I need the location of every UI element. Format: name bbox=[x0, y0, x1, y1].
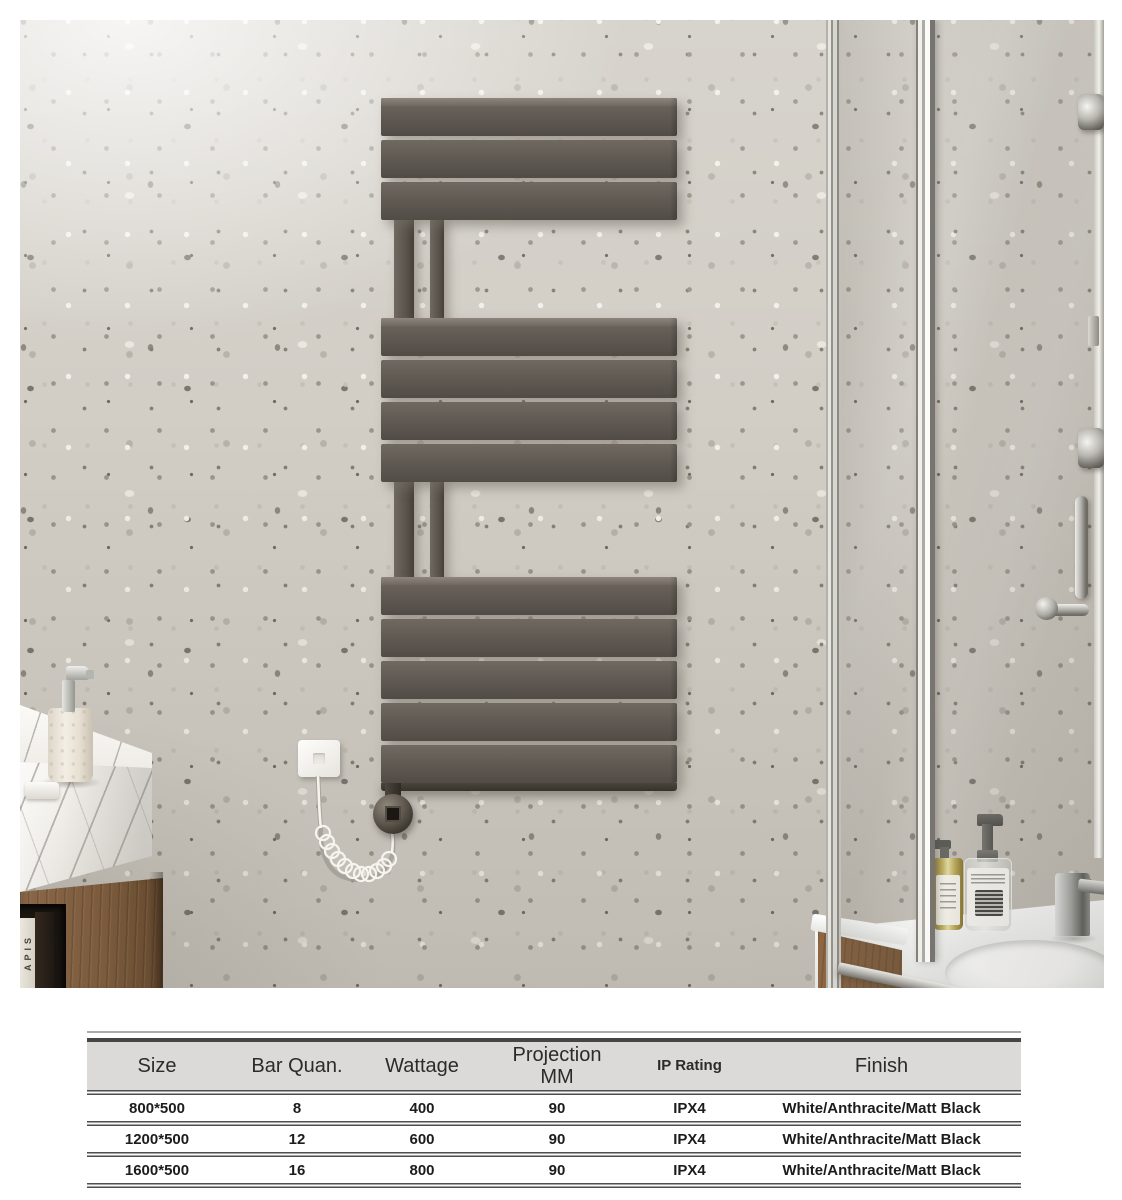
table-cell-bar-quantity: 12 bbox=[227, 1131, 367, 1148]
radiator-bar bbox=[381, 444, 677, 482]
table-cell-projection: 90 bbox=[477, 1100, 637, 1117]
soap-dispenser-pump-tip bbox=[86, 670, 94, 679]
table-cell-ip-rating: IPX4 bbox=[637, 1162, 742, 1179]
col-header-wattage: Wattage bbox=[367, 1055, 477, 1077]
radiator-tube bbox=[430, 475, 444, 585]
table-cell-projection: 90 bbox=[477, 1131, 637, 1148]
radiator-tube bbox=[394, 215, 414, 325]
table-row: 1600*500 16 800 90 IPX4 White/Anthracite… bbox=[87, 1157, 1021, 1183]
radiator-bottom-edge bbox=[381, 783, 677, 791]
glass-clamp-bottom bbox=[1078, 428, 1104, 468]
table-cell-size: 1200*500 bbox=[87, 1131, 227, 1148]
table-cell-wattage: 600 bbox=[367, 1131, 477, 1148]
table-cell-ip-rating: IPX4 bbox=[637, 1131, 742, 1148]
col-header-projection-mm: Projection MM bbox=[477, 1044, 637, 1089]
col-header-ip-rating: IP Rating bbox=[637, 1058, 742, 1075]
table-cell-bar-quantity: 8 bbox=[227, 1100, 367, 1117]
radiator-tube bbox=[394, 475, 414, 585]
amber-bottle-label bbox=[936, 875, 960, 925]
glass-clamp-top bbox=[1078, 94, 1104, 130]
radiator-section-bottom bbox=[381, 577, 677, 793]
radiator-bar bbox=[381, 360, 677, 398]
bathroom-product-photo: APIS bbox=[20, 20, 1104, 988]
soap-dispenser-body bbox=[48, 708, 93, 782]
table-bottom-border bbox=[87, 1183, 1021, 1188]
radiator-bar bbox=[381, 98, 677, 136]
shower-door-handle-vertical bbox=[1075, 496, 1088, 599]
radiator-section-top bbox=[381, 98, 677, 222]
radiator-bar bbox=[381, 402, 677, 440]
table-cell-finish: White/Anthracite/Matt Black bbox=[742, 1131, 1021, 1148]
radiator-bar bbox=[381, 703, 677, 741]
radiator-bar bbox=[381, 140, 677, 178]
table-cell-bar-quantity: 16 bbox=[227, 1162, 367, 1179]
table-header-row: Size Bar Quan. Wattage Projection MM IP … bbox=[87, 1042, 1021, 1090]
table-row: 1200*500 12 600 90 IPX4 White/Anthracite… bbox=[87, 1126, 1021, 1152]
vanity-side-shadow bbox=[149, 872, 163, 988]
col-header-size: Size bbox=[87, 1055, 227, 1077]
col-header-bar-quantity: Bar Quan. bbox=[227, 1055, 367, 1077]
heating-element bbox=[373, 794, 413, 834]
book-spine: APIS bbox=[20, 918, 35, 988]
radiator-bar bbox=[381, 745, 677, 783]
table-cell-wattage: 400 bbox=[367, 1100, 477, 1117]
clear-bottle-label bbox=[967, 868, 1009, 926]
spec-table: Size Bar Quan. Wattage Projection MM IP … bbox=[87, 1031, 1021, 1188]
radiator-bar bbox=[381, 577, 677, 615]
radiator-section-middle bbox=[381, 318, 677, 484]
table-cell-wattage: 800 bbox=[367, 1162, 477, 1179]
book-spine-text: APIS bbox=[23, 934, 33, 971]
shower-door-handle-knob bbox=[1035, 597, 1058, 620]
soap-dispenser-pump-stem bbox=[62, 680, 75, 712]
table-cell-finish: White/Anthracite/Matt Black bbox=[742, 1162, 1021, 1179]
radiator-bar bbox=[381, 318, 677, 356]
col-header-finish: Finish bbox=[742, 1055, 1021, 1077]
glass-frame-strip-middle bbox=[916, 20, 935, 962]
table-row: 800*500 8 400 90 IPX4 White/Anthracite/M… bbox=[87, 1095, 1021, 1121]
table-cell-size: 1600*500 bbox=[87, 1162, 227, 1179]
radiator-bar bbox=[381, 182, 677, 220]
shelf-dark-object bbox=[35, 912, 54, 988]
radiator-tube bbox=[430, 215, 444, 325]
radiator-bar bbox=[381, 619, 677, 657]
radiator-bar bbox=[381, 661, 677, 699]
towel-radiator bbox=[381, 20, 677, 810]
table-cell-size: 800*500 bbox=[87, 1100, 227, 1117]
glass-frame-strip-left bbox=[826, 20, 841, 988]
table-cell-finish: White/Anthracite/Matt Black bbox=[742, 1100, 1021, 1117]
glass-bracket bbox=[1088, 316, 1099, 346]
table-cell-projection: 90 bbox=[477, 1162, 637, 1179]
table-cell-ip-rating: IPX4 bbox=[637, 1100, 742, 1117]
table-outer-line bbox=[87, 1031, 1021, 1033]
soap-dish bbox=[25, 782, 59, 799]
